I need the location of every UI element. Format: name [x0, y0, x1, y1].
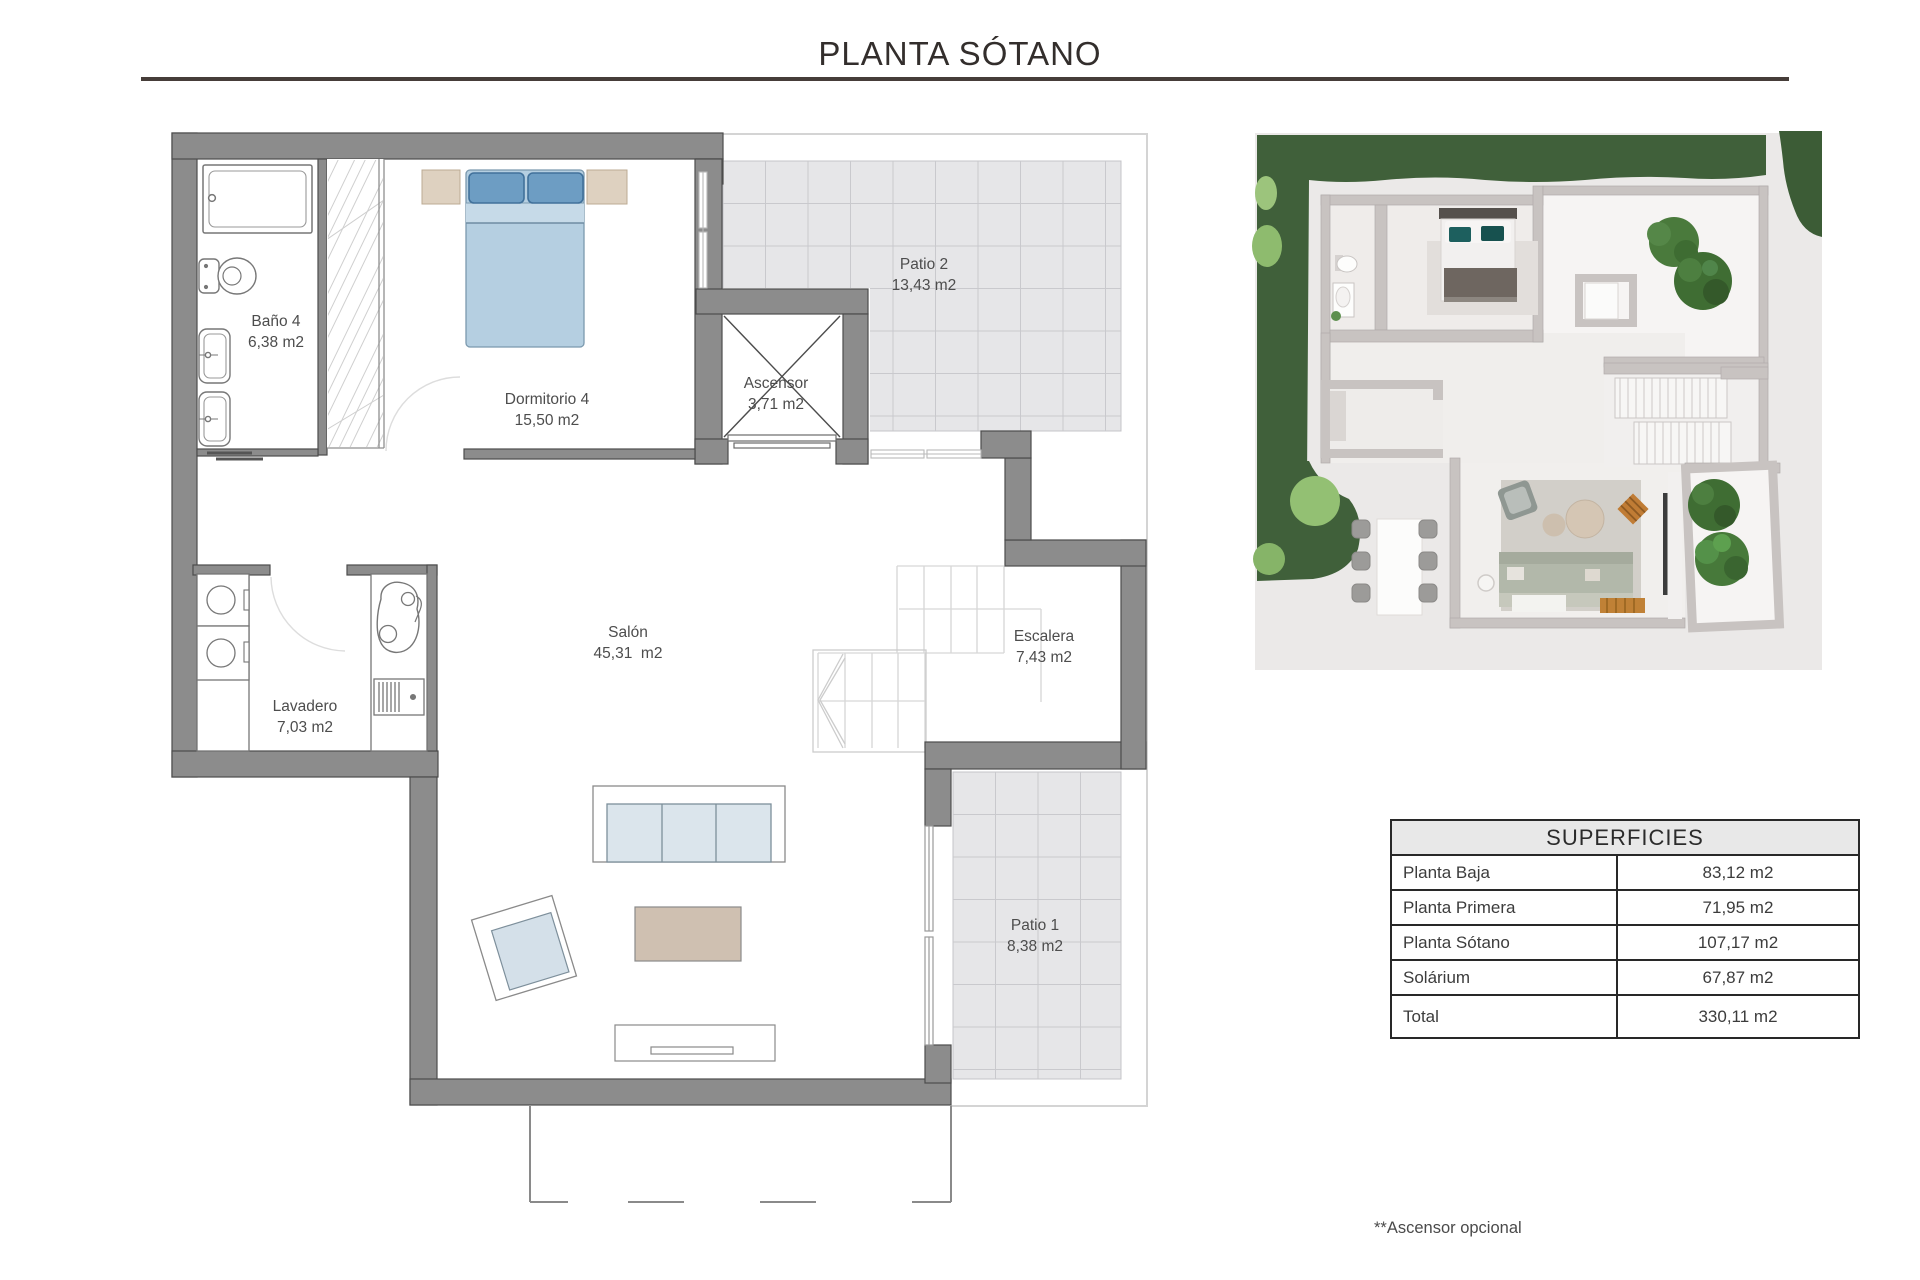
svg-text:Salón: Salón: [608, 624, 648, 641]
svg-text:3,71 m2: 3,71 m2: [748, 396, 804, 413]
svg-text:Patio 2: Patio 2: [900, 256, 948, 273]
svg-text:13,43 m2: 13,43 m2: [892, 277, 957, 294]
svg-text:Baño 4: Baño 4: [251, 313, 301, 330]
svg-text:45,31 m2: 45,31 m2: [594, 645, 663, 662]
svg-text:Lavadero: Lavadero: [273, 698, 338, 715]
svg-text:7,03 m2: 7,03 m2: [277, 719, 333, 736]
svg-text:Escalera: Escalera: [1014, 628, 1075, 645]
svg-text:6,38 m2: 6,38 m2: [248, 334, 304, 351]
svg-text:Dormitorio 4: Dormitorio 4: [505, 391, 590, 408]
svg-text:8,38 m2: 8,38 m2: [1007, 938, 1063, 955]
svg-text:15,50 m2: 15,50 m2: [515, 412, 580, 429]
svg-text:Ascensor: Ascensor: [744, 375, 809, 392]
svg-text:Patio 1: Patio 1: [1011, 917, 1059, 934]
svg-text:7,43 m2: 7,43 m2: [1016, 649, 1072, 666]
